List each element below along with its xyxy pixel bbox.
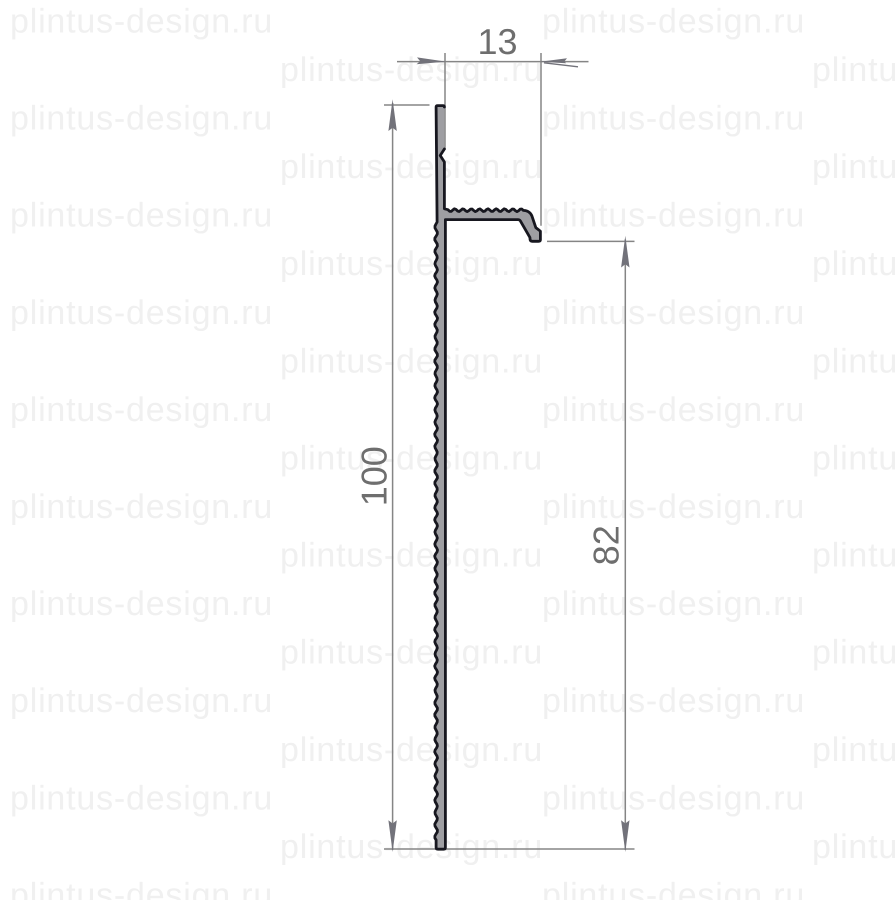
svg-text:plintus-design.ru: plintus-design.ru — [10, 3, 273, 41]
svg-text:plintus-design.ru: plintus-design.ru — [280, 148, 543, 186]
svg-text:plintus-design.ru: plintus-design.ru — [280, 439, 543, 477]
svg-text:plintus-design.ru: plintus-design.ru — [542, 585, 805, 623]
svg-text:plintus-design.ru: plintus-design.ru — [812, 828, 895, 866]
svg-text:plintus-design.ru: plintus-design.ru — [10, 779, 273, 817]
svg-text:plintus-design.ru: plintus-design.ru — [280, 342, 543, 380]
svg-text:plintus-design.ru: plintus-design.ru — [542, 100, 805, 138]
svg-text:plintus-design.ru: plintus-design.ru — [812, 731, 895, 769]
svg-text:plintus-design.ru: plintus-design.ru — [280, 828, 543, 866]
svg-text:plintus-design.ru: plintus-design.ru — [542, 488, 805, 526]
svg-text:plintus-design.ru: plintus-design.ru — [10, 197, 273, 235]
svg-text:plintus-design.ru: plintus-design.ru — [812, 245, 895, 283]
svg-text:plintus-design.ru: plintus-design.ru — [812, 51, 895, 89]
svg-text:plintus-design.ru: plintus-design.ru — [542, 779, 805, 817]
svg-text:plintus-design.ru: plintus-design.ru — [10, 682, 273, 720]
svg-text:plintus-design.ru: plintus-design.ru — [542, 294, 805, 332]
svg-text:plintus-design.ru: plintus-design.ru — [812, 537, 895, 575]
svg-text:100: 100 — [354, 446, 395, 506]
svg-text:plintus-design.ru: plintus-design.ru — [542, 3, 805, 41]
svg-text:13: 13 — [477, 21, 517, 62]
svg-text:plintus-design.ru: plintus-design.ru — [542, 682, 805, 720]
svg-text:plintus-design.ru: plintus-design.ru — [812, 148, 895, 186]
svg-text:plintus-design.ru: plintus-design.ru — [10, 585, 273, 623]
svg-text:plintus-design.ru: plintus-design.ru — [10, 876, 273, 900]
svg-text:82: 82 — [586, 525, 627, 565]
svg-text:plintus-design.ru: plintus-design.ru — [280, 731, 543, 769]
svg-text:plintus-design.ru: plintus-design.ru — [10, 100, 273, 138]
svg-text:plintus-design.ru: plintus-design.ru — [542, 391, 805, 429]
svg-text:plintus-design.ru: plintus-design.ru — [812, 439, 895, 477]
svg-text:plintus-design.ru: plintus-design.ru — [280, 537, 543, 575]
svg-text:plintus-design.ru: plintus-design.ru — [10, 488, 273, 526]
svg-text:plintus-design.ru: plintus-design.ru — [542, 876, 805, 900]
svg-text:plintus-design.ru: plintus-design.ru — [280, 634, 543, 672]
svg-text:plintus-design.ru: plintus-design.ru — [542, 197, 805, 235]
svg-text:plintus-design.ru: plintus-design.ru — [812, 634, 895, 672]
svg-text:plintus-design.ru: plintus-design.ru — [812, 342, 895, 380]
svg-text:plintus-design.ru: plintus-design.ru — [10, 294, 273, 332]
svg-text:plintus-design.ru: plintus-design.ru — [280, 245, 543, 283]
svg-text:plintus-design.ru: plintus-design.ru — [10, 391, 273, 429]
